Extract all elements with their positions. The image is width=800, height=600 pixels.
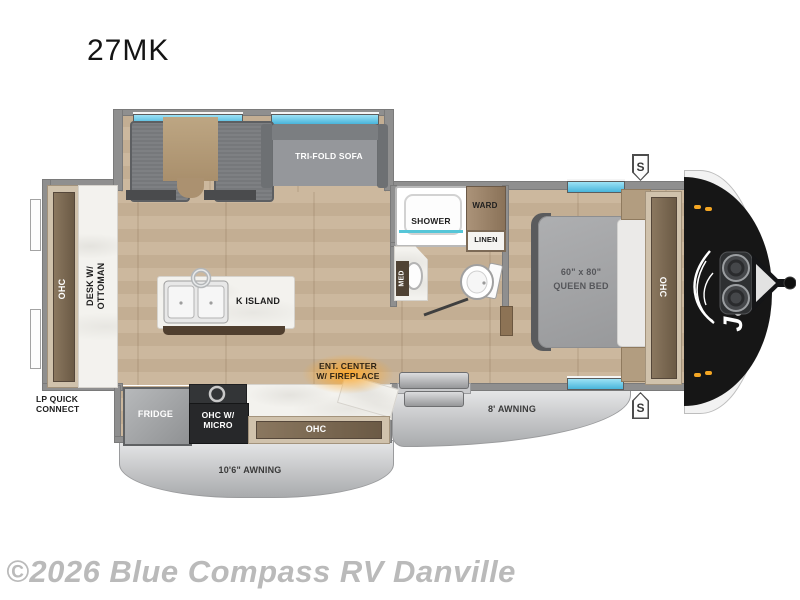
entry-step-2: [404, 391, 464, 407]
desk-label-line1: DESK W/: [85, 266, 95, 306]
wardrobe-label: WARD: [462, 201, 508, 211]
floorplan-page: 27MK 8' AWNING 10'6" AWNING TRI-FOLD SOF…: [0, 0, 800, 600]
seat-base-left: [126, 190, 176, 200]
marker-light-top-1: [694, 205, 701, 209]
desk-label-wrap: DESK W/ OTTOMAN: [85, 264, 107, 308]
island-base: [163, 326, 285, 335]
rear-ohc-label: OHC: [56, 274, 68, 304]
speaker-badge-bottom: S: [632, 392, 649, 419]
shower-pan: [404, 194, 462, 235]
shower-glass-accent: [399, 230, 463, 233]
lp-quick-connect-label: LP QUICK CONNECT: [36, 394, 96, 414]
propane-tank-icon: [723, 255, 749, 281]
marker-light-bottom-1: [694, 373, 701, 377]
kitchen-ohc-label: OHC: [283, 424, 349, 435]
cooktop-burner-icon: [204, 385, 230, 403]
seat-base-right: [204, 190, 256, 200]
island-faucet-icon: [188, 265, 214, 291]
micro-label-line2: MICRO: [203, 420, 232, 430]
marker-light-bottom-2: [705, 371, 712, 375]
jayco-bird-icon: [686, 243, 720, 343]
rear-window-bottom: [30, 309, 41, 369]
watermark: ©2026 Blue Compass RV Danville: [6, 554, 516, 590]
slideout-wall-left: [113, 109, 123, 191]
marker-light-top-2: [705, 207, 712, 211]
hitch-and-propane: [718, 246, 796, 322]
desk-label-line2: OTTOMAN: [96, 263, 106, 310]
ent-center-line1: ENT. CENTER: [319, 361, 377, 371]
med-label: MED: [398, 264, 409, 294]
bedroom-window-bottom: [567, 378, 624, 390]
micro-label-line1: OHC W/: [202, 410, 235, 420]
entry-step-1: [399, 372, 469, 389]
speaker-top-letter: S: [632, 160, 649, 174]
sofa-label: TRI-FOLD SOFA: [279, 151, 379, 161]
fridge-label: FRIDGE: [123, 409, 188, 420]
micro-label: OHC W/ MICRO: [189, 410, 247, 430]
ent-center-label: ENT. CENTER W/ FIREPLACE: [307, 361, 389, 381]
speaker-bottom-letter: S: [632, 401, 649, 415]
tri-fold-sofa: [272, 140, 378, 186]
bed-size-label: 60" x 80": [531, 267, 631, 278]
page-title: 27MK: [87, 34, 169, 68]
bedroom-ohc-label: OHC: [657, 272, 669, 302]
hitch-ball-icon: [784, 277, 796, 289]
rear-window-top: [30, 199, 41, 251]
speaker-badge-top: S: [632, 154, 649, 181]
bed-name-label: QUEEN BED: [531, 281, 631, 292]
lp-label-line1: LP QUICK: [36, 394, 78, 404]
shower-label: SHOWER: [397, 216, 465, 226]
sofa-backrest: [272, 124, 378, 140]
lp-label-line2: CONNECT: [36, 404, 79, 414]
ent-center-line2: W/ FIREPLACE: [316, 371, 379, 381]
kitchen-awning-label: 10'6" AWNING: [190, 465, 310, 476]
door-awning-label: 8' AWNING: [452, 404, 572, 415]
bath-door-jamb: [500, 306, 513, 336]
island-label: K ISLAND: [225, 296, 291, 307]
propane-tank-icon: [723, 285, 749, 311]
wall-kitchen-left: [114, 385, 121, 442]
bath-door-line: [420, 295, 472, 319]
linen-label: LINEN: [464, 235, 508, 244]
bedroom-window-top: [567, 181, 625, 193]
seat-console-table: [163, 117, 218, 181]
